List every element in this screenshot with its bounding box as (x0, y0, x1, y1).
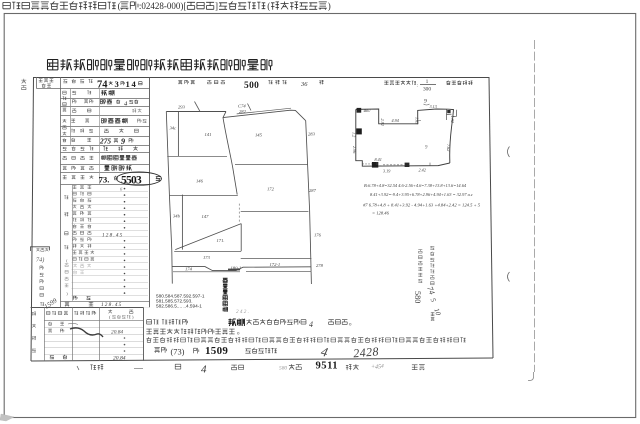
svg-text:4.94: 4.94 (392, 118, 399, 123)
svg-text:293: 293 (178, 104, 186, 109)
svg-text:C74: C74 (238, 104, 246, 109)
svg-text:582.586.5.... ..4.594-1: 582.586.5.... ..4.594-1 (156, 304, 202, 309)
svg-text::02428-000)[: :02428-000)[ (139, 1, 187, 11)
svg-text:4: 4 (309, 320, 313, 329)
svg-text:3.19: 3.19 (383, 169, 391, 174)
svg-text:2 4 2 .: 2 4 2 . (236, 308, 249, 315)
svg-text:20.84: 20.84 (111, 330, 123, 336)
svg-text:580: 580 (279, 366, 287, 372)
svg-text:36: 36 (300, 81, 308, 88)
svg-text:): ) (328, 1, 331, 11)
svg-text:3.13: 3.13 (430, 104, 437, 109)
svg-text:141: 141 (205, 132, 212, 137)
svg-text:74: 74 (97, 79, 108, 90)
svg-text:8.41: 8.41 (375, 157, 382, 162)
svg-text:1.2: 1.2 (352, 132, 357, 137)
svg-text:B:6.78+4.8=32.54 4.6-2.56+4.6: B:6.78+4.8=32.54 4.6-2.56+4.6=7.38+13.8+… (364, 183, 467, 188)
svg-text:8.41+3.92=-9.4+3.95+6.78+2.96+: 8.41+3.92=-9.4+3.95+6.78+2.96+4.94+1.63 … (370, 192, 473, 197)
svg-text:34b: 34b (173, 214, 181, 219)
svg-text:]: ] (215, 1, 218, 11)
svg-text:282: 282 (239, 109, 247, 114)
svg-text:1: 1 (426, 79, 429, 85)
svg-text:9511: 9511 (316, 360, 339, 371)
svg-text:300: 300 (423, 87, 431, 93)
svg-text:2.92: 2.92 (380, 119, 385, 126)
svg-text:172: 172 (267, 187, 275, 192)
svg-text:500: 500 (244, 81, 259, 91)
svg-text:4.67: 4.67 (364, 108, 372, 113)
svg-text:1.63: 1.63 (415, 117, 420, 124)
svg-text:128.45: 128.45 (102, 232, 123, 239)
svg-text:= 128.46: = 128.46 (372, 211, 390, 216)
svg-text:278: 278 (316, 263, 324, 268)
svg-text:287: 287 (309, 188, 317, 193)
svg-text:1.32: 1.32 (450, 116, 455, 123)
svg-text:1509: 1509 (205, 345, 228, 357)
svg-text:173: 173 (203, 255, 211, 260)
svg-text:20.84: 20.84 (113, 355, 126, 361)
svg-text:283: 283 (308, 132, 316, 137)
svg-text:180-1: 180-1 (231, 266, 242, 271)
svg-text:4: 4 (201, 364, 207, 376)
svg-text:2.42: 2.42 (419, 168, 426, 173)
svg-text:9: 9 (424, 99, 427, 105)
svg-text:#7 6.78+4.8 + 8.41+3.92 - 4.94: #7 6.78+4.8 + 8.41+3.92 - 4.94+1.63 +4.8… (363, 203, 481, 208)
svg-text:147: 147 (202, 214, 210, 219)
svg-text:1: 1 (126, 79, 130, 89)
svg-text:4: 4 (132, 79, 137, 89)
svg-text:2428: 2428 (353, 344, 380, 360)
svg-text:275: 275 (99, 137, 111, 146)
svg-text:34c: 34c (170, 126, 177, 131)
svg-text:(: ( (267, 1, 270, 11)
svg-text:(73): (73) (171, 348, 185, 357)
svg-text:3: 3 (115, 79, 119, 89)
svg-text:7.62: 7.62 (446, 144, 451, 151)
svg-text:4: 4 (381, 364, 384, 370)
svg-text:171.: 171. (217, 238, 225, 243)
svg-text:+45: +45 (371, 364, 381, 371)
svg-text:580: 580 (413, 291, 422, 303)
svg-text:(: ( (118, 1, 121, 11)
svg-text:146: 146 (196, 179, 204, 184)
svg-text:9: 9 (121, 137, 125, 146)
svg-text:128.45: 128.45 (101, 301, 122, 308)
svg-text:174: 174 (185, 266, 193, 271)
svg-text:172-1: 172-1 (270, 262, 281, 267)
svg-text:176: 176 (314, 233, 322, 238)
svg-text:2.96: 2.96 (352, 146, 357, 154)
svg-text:145: 145 (255, 133, 263, 138)
svg-text:73.: 73. (99, 175, 110, 185)
svg-text:74): 74) (36, 257, 44, 264)
